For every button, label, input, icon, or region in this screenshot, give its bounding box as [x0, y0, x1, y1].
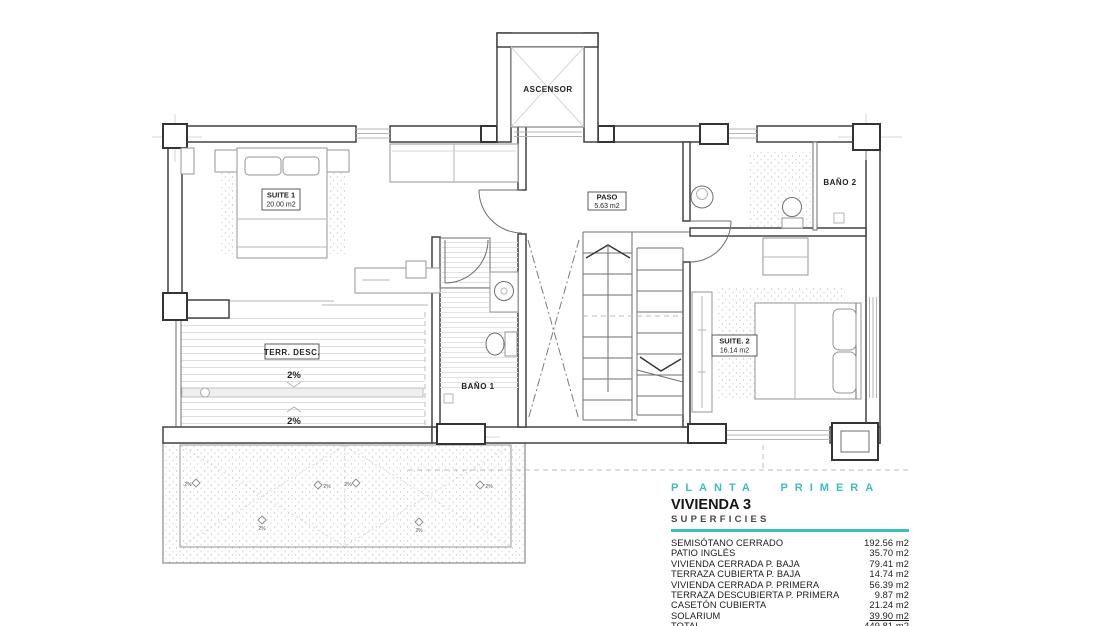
desk: [355, 261, 440, 293]
area-value: 449.81 m2: [847, 621, 909, 626]
area-value: 14.74 m2: [847, 569, 909, 579]
svg-text:2%: 2%: [485, 484, 493, 490]
legend-panel: PLANTA PRIMERA VIVIENDA 3 SUPERFICIES SE…: [671, 481, 909, 626]
terraza-slope-1: 2%: [287, 370, 301, 381]
area-row: CASETÓN CUBIERTA 21.24 m2: [671, 600, 909, 610]
area-row: SOLARIUM 39.90 m2: [671, 611, 909, 621]
suite1-area: 20.00 m2: [266, 202, 295, 209]
area-label: PATIO INGLÉS: [671, 548, 735, 558]
terraza-slope-2: 2%: [287, 416, 301, 427]
area-value: 56.39 m2: [847, 580, 909, 590]
stairs-turn-arrow: [640, 357, 681, 371]
elevator: ASCENSOR: [497, 33, 598, 142]
floor-plan: 2% 2% 2% 2% 2% 2% TERR. DESC. 2% 2%: [0, 0, 1110, 626]
sink: [490, 272, 518, 312]
terraza-descubierta: TERR. DESC. 2% 2%: [176, 301, 428, 428]
unit-title: VIVIENDA 3: [671, 496, 909, 514]
area-value: 35.70 m2: [847, 548, 909, 558]
area-value: 192.56 m2: [847, 538, 909, 548]
area-value: 21.24 m2: [847, 600, 909, 610]
area-label: SOLARIUM: [671, 611, 720, 621]
svg-text:2%: 2%: [323, 484, 331, 490]
section-title: SUPERFICIES: [671, 514, 909, 526]
area-label: TERRAZA CUBIERTA P. BAJA: [671, 569, 801, 579]
area-label: TERRAZA DESCUBIERTA P. PRIMERA: [671, 590, 839, 600]
area-value: 9.87 m2: [847, 590, 909, 600]
area-value: 39.90 m2: [847, 611, 909, 621]
paso-name: PASO: [597, 193, 618, 202]
wardrobe: [692, 292, 712, 412]
screenshot-root: 2% 2% 2% 2% 2% 2% TERR. DESC. 2% 2%: [0, 0, 1110, 626]
balustrade: [182, 388, 423, 397]
area-label: SEMISÓTANO CERRADO: [671, 538, 783, 548]
floor-title: PLANTA PRIMERA: [671, 481, 909, 495]
suite2-area: 16.14 m2: [720, 348, 749, 355]
dresser: [763, 238, 808, 275]
sink: [691, 186, 713, 208]
door: [690, 221, 731, 262]
suite1-name: SUITE 1: [267, 191, 295, 200]
area-row: TERRAZA DESCUBIERTA P. PRIMERA 9.87 m2: [671, 590, 909, 600]
bano-1: BAÑO 1: [440, 238, 518, 403]
area-label: VIVIENDA CERRADA P. PRIMERA: [671, 580, 819, 590]
bano2-label: BAÑO 2: [823, 178, 856, 187]
toilet: [782, 198, 803, 229]
area-row: VIVIENDA CERRADA P. PRIMERA 56.39 m2: [671, 580, 909, 590]
areas-table: SEMISÓTANO CERRADO 192.56 m2 PATIO INGLÉ…: [671, 538, 909, 626]
stairs: [583, 232, 690, 420]
door: [479, 190, 522, 233]
elevator-label: ASCENSOR: [523, 85, 572, 94]
legend-divider: [671, 529, 909, 532]
terraza-label: TERR. DESC.: [264, 348, 320, 357]
svg-text:2%: 2%: [415, 528, 423, 534]
area-row: SEMISÓTANO CERRADO 192.56 m2: [671, 538, 909, 548]
bano1-label: BAÑO 1: [461, 382, 494, 391]
area-label: TOTAL: [671, 621, 701, 626]
area-label: CASETÓN CUBIERTA: [671, 600, 766, 610]
area-row: VIVIENDA CERRADA P. BAJA 79.41 m2: [671, 559, 909, 569]
area-row: PATIO INGLÉS 35.70 m2: [671, 548, 909, 558]
svg-text:2%: 2%: [184, 482, 192, 488]
svg-text:2%: 2%: [258, 526, 266, 532]
area-row: TERRAZA CUBIERTA P. BAJA 14.74 m2: [671, 569, 909, 579]
svg-text:2%: 2%: [344, 482, 352, 488]
suite2-name: SUITE. 2: [719, 337, 749, 346]
suite-2: SUITE. 2 16.14 m2: [692, 238, 861, 412]
area-value: 79.41 m2: [847, 559, 909, 569]
paso-area: 5.63 m2: [594, 203, 619, 210]
void-cross: [528, 240, 579, 420]
area-row: TOTAL 449.81 m2: [671, 621, 909, 626]
bed: [755, 303, 861, 399]
area-label: VIVIENDA CERRADA P. BAJA: [671, 559, 800, 569]
bano-2: BAÑO 2: [691, 142, 857, 230]
